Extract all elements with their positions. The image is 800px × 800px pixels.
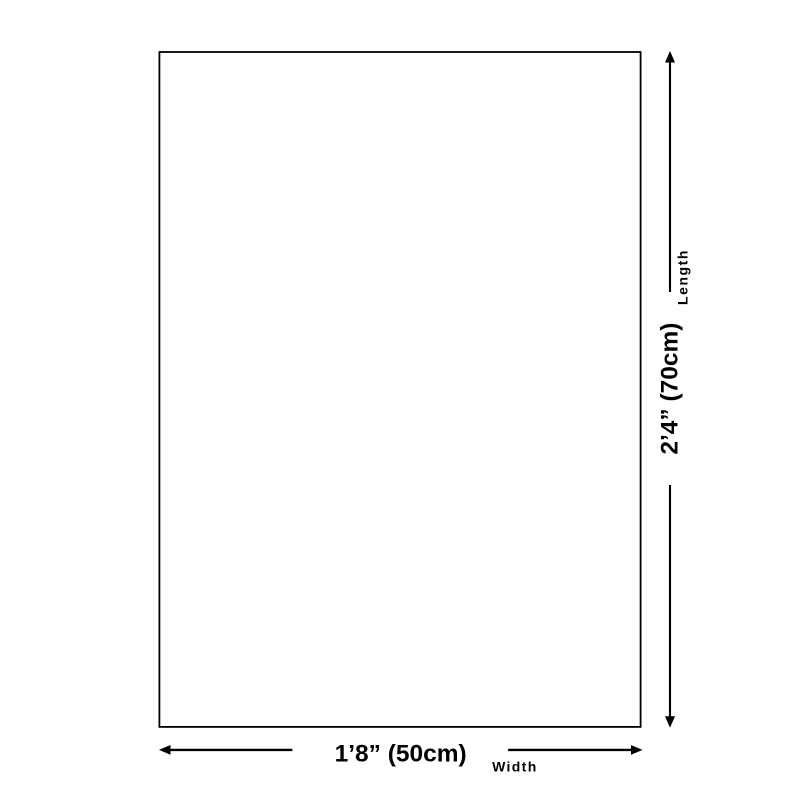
- svg-text:2’4” (70cm): 2’4” (70cm): [656, 323, 683, 455]
- svg-text:Width: Width: [492, 758, 537, 774]
- svg-text:Length: Length: [674, 249, 690, 305]
- svg-text:1’8” (50cm): 1’8” (50cm): [335, 740, 467, 767]
